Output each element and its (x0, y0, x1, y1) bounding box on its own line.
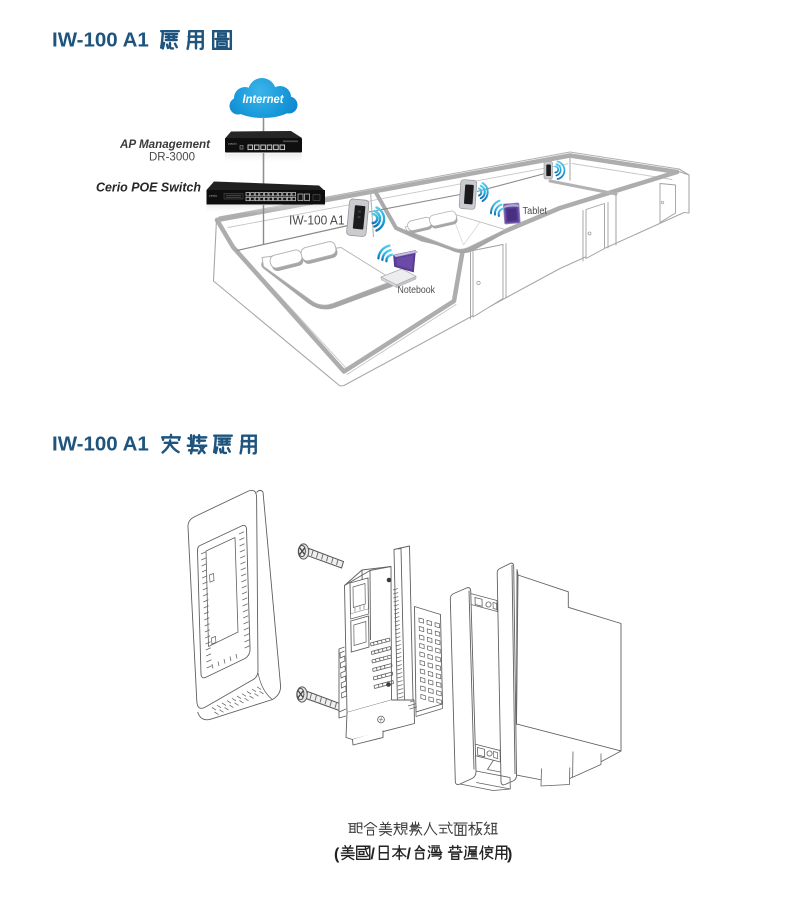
svg-text:Internet: Internet (243, 94, 285, 106)
svg-text:/: / (371, 846, 376, 863)
svg-text:): ) (507, 846, 512, 863)
svg-text:IW-100 A1: IW-100 A1 (52, 433, 149, 456)
svg-text:Tablet: Tablet (523, 206, 548, 217)
svg-text:Notebook: Notebook (398, 285, 436, 296)
svg-text:(: ( (334, 846, 340, 863)
svg-text:IW-100 A1: IW-100 A1 (289, 214, 345, 228)
svg-text:/: / (407, 846, 412, 863)
svg-text:cerio: cerio (228, 141, 237, 146)
svg-text:IW-100 A1: IW-100 A1 (52, 29, 149, 52)
svg-text:cerio: cerio (209, 194, 217, 198)
svg-text:AP Management: AP Management (119, 137, 211, 151)
svg-text:DR-3000: DR-3000 (149, 152, 195, 164)
svg-text:Cerio POE Switch: Cerio POE Switch (96, 180, 201, 195)
